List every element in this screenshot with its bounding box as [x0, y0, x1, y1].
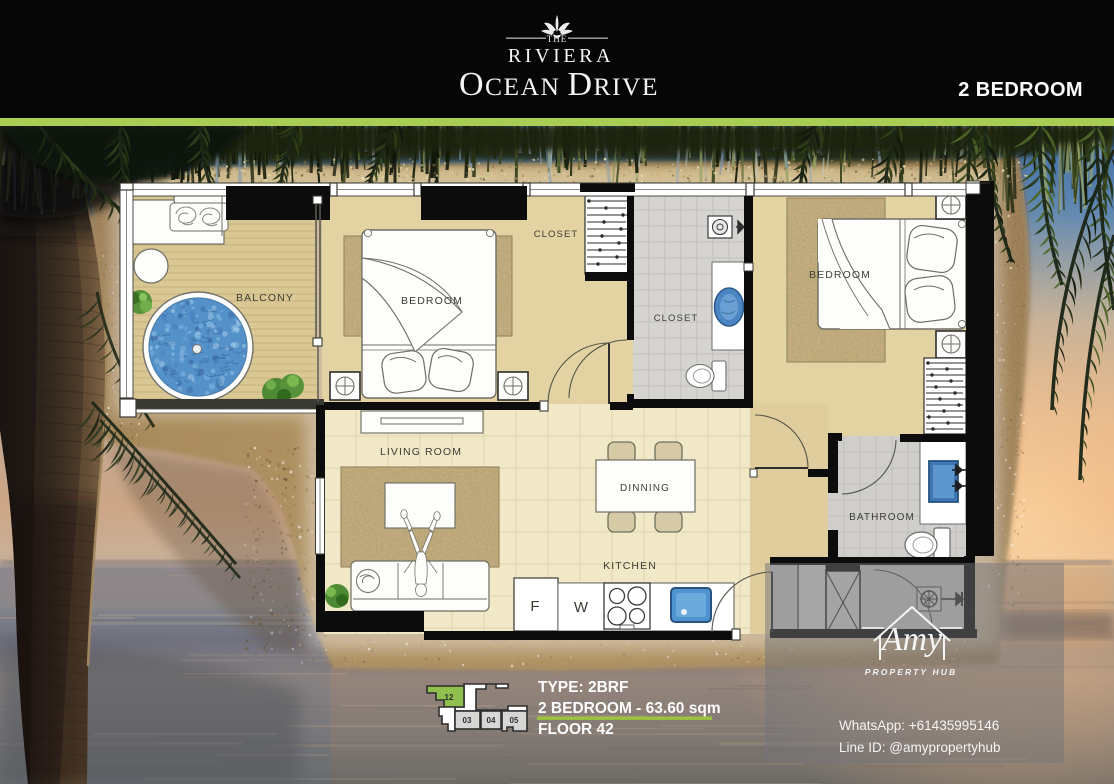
- svg-text:W: W: [574, 599, 589, 616]
- svg-text:BEDROOM: BEDROOM: [401, 295, 463, 307]
- svg-text:CLOSET: CLOSET: [534, 229, 579, 240]
- svg-text:LIVING ROOM: LIVING ROOM: [380, 446, 462, 458]
- svg-text:2 BEDROOM - 63.60 sqm: 2 BEDROOM - 63.60 sqm: [538, 700, 721, 717]
- svg-text:04: 04: [487, 716, 496, 725]
- svg-text:Amy: Amy: [880, 621, 943, 658]
- svg-text:WhatsApp: +61435995146: WhatsApp: +61435995146: [839, 718, 999, 733]
- svg-text:BALCONY: BALCONY: [236, 292, 294, 304]
- svg-text:TYPE: 2BRF: TYPE: 2BRF: [538, 679, 628, 696]
- svg-text:F: F: [530, 598, 539, 615]
- svg-text:CLOSET: CLOSET: [654, 313, 699, 324]
- svg-text:12: 12: [445, 693, 454, 702]
- svg-text:03: 03: [463, 716, 472, 725]
- svg-text:BEDROOM: BEDROOM: [809, 269, 871, 281]
- svg-text:DINNING: DINNING: [620, 483, 670, 494]
- svg-text:BATHROOM: BATHROOM: [849, 512, 915, 523]
- svg-text:THE: THE: [547, 34, 568, 44]
- svg-text:RIVIERA: RIVIERA: [508, 45, 614, 67]
- svg-text:PROPERTY HUB: PROPERTY HUB: [865, 667, 957, 677]
- svg-text:OCEANDRIVE: OCEANDRIVE: [459, 66, 659, 103]
- svg-text:Line ID: @amypropertyhub: Line ID: @amypropertyhub: [839, 740, 1001, 755]
- svg-text:2 BEDROOM: 2 BEDROOM: [958, 79, 1083, 101]
- svg-text:FLOOR 42: FLOOR 42: [538, 721, 614, 738]
- svg-text:KITCHEN: KITCHEN: [603, 560, 657, 572]
- svg-text:05: 05: [510, 716, 519, 725]
